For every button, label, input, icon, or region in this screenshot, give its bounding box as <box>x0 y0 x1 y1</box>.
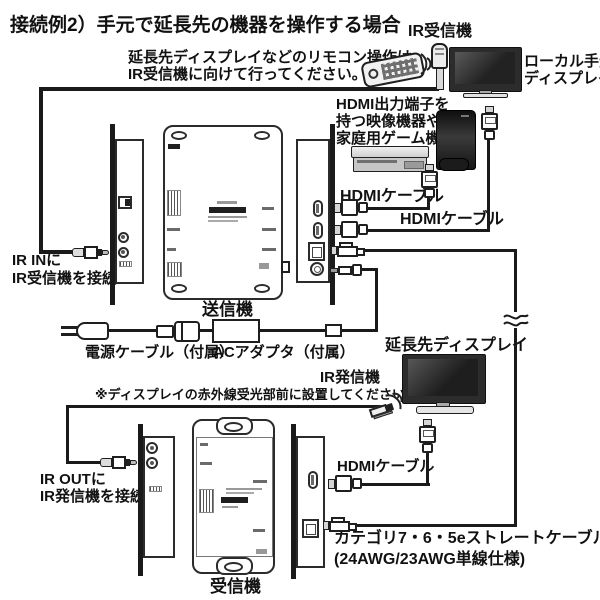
mount-hole <box>254 131 270 140</box>
power-cable-line-3 <box>340 329 378 332</box>
receiver-label: 受信機 <box>210 577 261 596</box>
cat-cable-vertical-2 <box>514 327 517 527</box>
service-port <box>281 261 290 273</box>
dc-cable-line <box>259 329 327 332</box>
device-nameplate <box>221 497 248 503</box>
mount-hole <box>224 422 243 432</box>
cat-cable-label-1: カテゴリ7・6・5eストレートケーブル <box>334 530 600 548</box>
receiver-left-side-view <box>143 436 175 558</box>
local-display-screen <box>455 52 515 84</box>
ir-out-cable-top <box>66 405 386 408</box>
hdmi-cable-label-c: HDMIケーブル <box>337 459 434 476</box>
ir-in-cable-bottom <box>39 250 74 254</box>
mount-hole <box>224 562 243 572</box>
mount-hole <box>171 131 187 140</box>
hdmi-cable-c-riser <box>426 451 429 485</box>
connection-diagram: 接続例2）手元で延長先の機器を操作する場合 延長先ディスプレイなどのリモコン操作… <box>0 0 600 600</box>
ir-out-cable-left <box>66 405 69 464</box>
power-cable-line-2 <box>375 268 378 332</box>
device-nameplate <box>209 207 246 213</box>
ac-adapter <box>212 319 260 343</box>
ir-emitter-note: ※ディスプレイの赤外線受光部前に設置してください。 <box>95 388 418 403</box>
dip-switch <box>149 486 162 492</box>
ir-receiver-label: IR受信機 <box>408 23 472 41</box>
receiver-right-side-view <box>296 436 325 568</box>
ir-out-cable-bottom <box>66 461 103 464</box>
hdmi-cable-a-riser <box>427 196 430 210</box>
mount-hole <box>171 284 187 293</box>
remote-note-line2: IR受信機に向けて行ってください。 <box>128 67 367 84</box>
extended-display-screen <box>408 359 478 396</box>
cat-cable-top <box>362 249 517 252</box>
ir-out-label-2: IR発信機を接続 <box>40 489 145 506</box>
device-label-art <box>199 489 214 513</box>
hdmi-cable-b-line <box>366 229 490 232</box>
transmitter-right-plate <box>330 124 335 305</box>
dip-switch <box>119 261 132 267</box>
hdmi-cable-c-line <box>360 483 430 486</box>
ir-emitter-label: IR発信機 <box>320 370 380 387</box>
cable-break-icon <box>503 310 529 330</box>
device-label-art <box>167 190 181 216</box>
page-title: 接続例2）手元で延長先の機器を操作する場合 <box>10 15 401 36</box>
ir-in-label-2: IR受信機を接続 <box>12 271 117 288</box>
dc-inline-connector <box>325 324 342 337</box>
source-label-1: HDMI出力端子を <box>336 97 449 114</box>
device-label-art <box>167 262 182 277</box>
ac-cord-line-1 <box>108 329 158 332</box>
transmitter-label: 送信機 <box>202 300 253 319</box>
mount-hole <box>254 284 270 293</box>
ir-in-cable-left <box>39 87 43 253</box>
local-display-label-1: ローカル手元 <box>524 54 600 71</box>
cat-cable-vertical-1 <box>514 249 517 313</box>
cat-cable-bottom <box>356 524 517 527</box>
device-label-art <box>168 144 180 149</box>
source-label-2: 持つ映像機器や <box>336 114 441 131</box>
cat-cable-label-2: (24AWG/23AWG単線仕様) <box>334 551 525 569</box>
hdmi-cable-b-riser <box>487 140 490 232</box>
local-display-label-2: ディスプレイ <box>524 71 600 88</box>
local-display-base <box>463 93 508 98</box>
game-controller <box>439 158 469 171</box>
extended-display-base <box>416 406 474 414</box>
ir-out-label-1: IR OUTに <box>40 472 106 489</box>
ir-in-cable-top <box>39 87 439 91</box>
extended-display-label: 延長先ディスプレイ <box>385 337 528 355</box>
hdmi-cable-a-line <box>366 207 430 210</box>
power-cable-label: 電源ケーブル（付属） <box>85 345 234 362</box>
ac-adapter-label: ACアダプタ（付属） <box>213 345 355 362</box>
ir-in-label-1: IR INに <box>12 253 61 270</box>
